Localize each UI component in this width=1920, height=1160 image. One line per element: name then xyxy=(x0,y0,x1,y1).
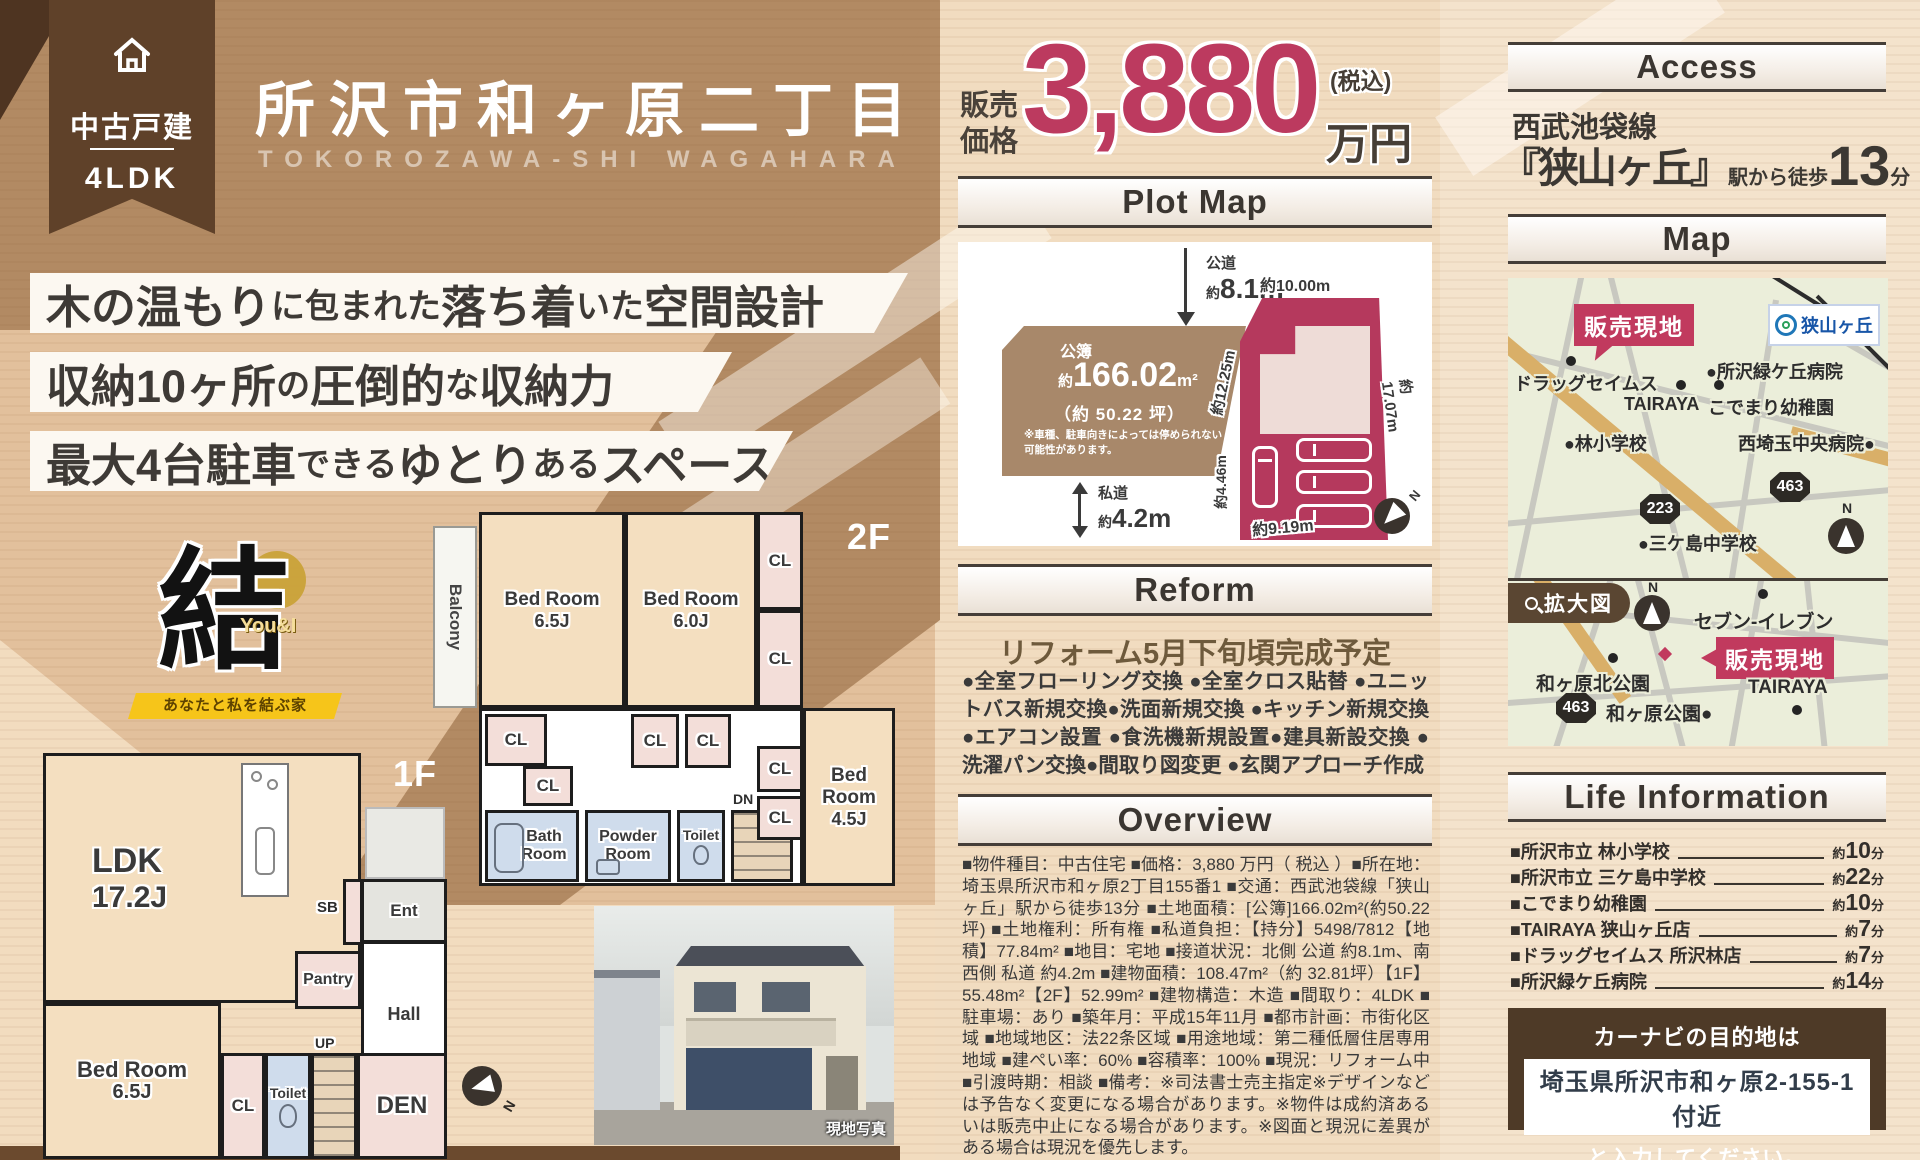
logo-accent: You&I xyxy=(240,615,296,638)
compass-upper-n: N xyxy=(1842,500,1852,516)
catchphrase-segment: 収納力 xyxy=(479,350,614,415)
access-minutes: 13 xyxy=(1828,138,1890,194)
flyer-canvas: 中古戸建 4LDK 所沢市和ヶ原二丁目 TOKOROZAWA-SHI WAGAH… xyxy=(0,0,1920,1160)
access-suffix: 駅から徒歩 xyxy=(1728,161,1828,190)
landmark-label-kindergarten: こでまり幼稚園 xyxy=(1708,394,1834,420)
landmark-dot xyxy=(1792,705,1802,715)
dim-right: 約17.07m xyxy=(1378,378,1424,445)
toilet-icon xyxy=(693,845,709,865)
access-station-line: 『狭山ヶ丘』 駅から徒歩 13 分 xyxy=(1500,134,1910,194)
toilet-icon xyxy=(279,1104,297,1128)
photo-lower-panel xyxy=(686,1048,812,1110)
road-approx: 約 xyxy=(1206,285,1220,301)
time-minutes: 7 xyxy=(1858,941,1871,967)
landmark-label-hospital2: 西埼玉中央病院● xyxy=(1738,430,1875,456)
leader-line xyxy=(1655,987,1825,989)
compass-1f xyxy=(462,1066,502,1106)
overview-header-label: Overview xyxy=(1118,801,1273,839)
logo-tagline: あなたと私を結ぶ家 xyxy=(128,693,342,719)
landmark-dot xyxy=(1758,589,1768,599)
catchphrase-segment: 木の温もり xyxy=(46,271,271,336)
company-logo: 結 You&I あなたと私を結ぶ家 xyxy=(128,543,342,719)
catchphrase-segment: の xyxy=(276,358,310,407)
landmark-label-park: 和ヶ原公園● xyxy=(1606,699,1712,726)
price-unit: 万円 xyxy=(1326,110,1412,172)
life-info-row: ■TAIRAYA 狭山ヶ丘店約7分 xyxy=(1510,916,1884,942)
catchphrase-segment: できる xyxy=(296,437,397,486)
room-label: LDK xyxy=(92,842,162,881)
time-unit: 分 xyxy=(1871,924,1884,939)
bathtub-icon xyxy=(494,823,524,873)
life-info-name: ■所沢市立 林小学校 xyxy=(1510,838,1670,864)
property-type-badge: 中古戸建 4LDK xyxy=(49,0,215,234)
catchphrase-segment: に包まれた xyxy=(271,279,441,328)
time-unit: 分 xyxy=(1871,950,1884,965)
room-label: Bed Room xyxy=(77,1059,187,1081)
compass-needle xyxy=(1643,602,1661,624)
floor-label-1f: 1F xyxy=(393,753,437,795)
life-info-time: 約14分 xyxy=(1832,967,1884,994)
bedroom-6_5j-1f: Bed Room 6.5J xyxy=(43,1003,221,1159)
pantry: Pantry xyxy=(295,951,361,1009)
route-number: 463 xyxy=(1563,699,1590,717)
life-info-row: ■所沢緑ケ丘病院約14分 xyxy=(1510,968,1884,994)
sale-site-label: 販売現地 xyxy=(1725,641,1825,675)
access-station: 『狭山ヶ丘』 xyxy=(1500,134,1728,194)
life-info-time: 約22分 xyxy=(1832,863,1884,890)
catchphrase-segment: 落ち着 xyxy=(441,271,576,336)
room-label: Hall xyxy=(387,1004,420,1025)
callout-pointer xyxy=(1701,649,1717,667)
car-icon xyxy=(1252,446,1278,508)
closet-label: CL xyxy=(769,551,792,571)
room-label: Bath xyxy=(526,828,562,846)
road-size: 4.2m xyxy=(1112,503,1171,533)
callout-pointer xyxy=(1595,343,1613,363)
map-header: Map xyxy=(1508,214,1886,264)
catchphrase-segment: 圧倒的 xyxy=(310,350,445,415)
catchphrase-segment: スペース xyxy=(600,429,775,494)
dim-bottom-left: 約4.46m xyxy=(1211,455,1231,509)
closet-label: CL xyxy=(769,649,792,669)
stairs-1f xyxy=(311,1053,357,1159)
room-size: 6.5J xyxy=(534,611,569,632)
den: DEN xyxy=(357,1053,447,1159)
landmark-dot xyxy=(1676,380,1686,390)
closet-2f-b: CL xyxy=(757,610,803,708)
price-label: 販売 価格 xyxy=(960,88,1018,160)
landmark-label-junior-high: ●三ケ島中学校 xyxy=(1638,530,1757,556)
south-road-arrowhead-top xyxy=(1072,482,1088,494)
life-info-name: ■TAIRAYA 狭山ヶ丘店 xyxy=(1510,916,1691,942)
south-road-label: 私道 約4.2m xyxy=(1098,482,1171,534)
parcel-area-unit: m² xyxy=(1177,371,1198,390)
north-road-arrow xyxy=(1184,248,1187,314)
time-minutes: 10 xyxy=(1845,837,1871,863)
compass-needle xyxy=(469,1074,495,1097)
closet-2f-c: CL xyxy=(485,714,547,766)
bedroom-4_5j-2f: Bed Room 4.5J xyxy=(803,708,895,886)
badge-type-label: 中古戸建 xyxy=(49,104,215,146)
landmark-label-elementary: ●林小学校 xyxy=(1564,430,1647,456)
area-map-lower: 拡大図 N セブン-イレブン 販売現地 和ヶ原北公園 463 和ヶ原公園● TA… xyxy=(1508,581,1888,746)
life-info-time: 約7分 xyxy=(1845,915,1884,942)
time-approx: 約 xyxy=(1845,924,1858,939)
parcel-area: 166.02 xyxy=(1073,356,1177,394)
catchphrase-segment: 収納10ヶ所 xyxy=(46,350,276,415)
overview-header: Overview xyxy=(958,794,1432,846)
house-icon xyxy=(109,34,155,76)
carnav-line1: カーナビの目的地は xyxy=(1508,1020,1886,1052)
landmark-label-seven-eleven: セブン-イレブン xyxy=(1694,607,1833,634)
leader-line xyxy=(1714,883,1825,885)
seibu-line-icon xyxy=(1775,314,1797,336)
life-info-header-label: Life Information xyxy=(1564,778,1829,816)
closet-label: CL xyxy=(537,776,560,796)
room-label: Toilet xyxy=(683,827,719,843)
closet-label: CL xyxy=(697,731,720,751)
time-minutes: 14 xyxy=(1845,967,1871,993)
room-label: Room xyxy=(521,846,566,864)
closet-2f-a: CL xyxy=(757,512,803,610)
life-info-row: ■所沢市立 三ケ島中学校約22分 xyxy=(1510,864,1884,890)
life-info-name: ■ドラッグセイムス 所沢林店 xyxy=(1510,942,1742,968)
price-amount: 3,880 xyxy=(1022,14,1317,164)
floorplan-1f: 1F LDK 17.2J Ent SB Pantry Hall Bed Room… xyxy=(43,753,447,1159)
site-photo: 現地写真 xyxy=(594,906,894,1145)
room-size: 6.0J xyxy=(673,611,708,632)
sale-site-callout-upper: 販売現地 xyxy=(1574,304,1694,346)
landmark-label-tairaya-lower: TAIRAYA xyxy=(1748,677,1828,699)
balcony-label: Balcony xyxy=(445,584,465,650)
badge-plan-label: 4LDK xyxy=(49,162,215,196)
closet-label: CL xyxy=(505,730,528,750)
road-name: 公道 xyxy=(1206,252,1284,273)
toilet-1f: Toilet xyxy=(265,1053,311,1159)
room-label: Ent xyxy=(390,901,417,921)
closet-label: CL xyxy=(232,1096,255,1116)
route-badge-463: 463 xyxy=(1770,472,1810,502)
room-size: 17.2J xyxy=(92,881,167,915)
landmark-dot xyxy=(1714,380,1724,390)
logo-glyph: 結 xyxy=(158,537,290,687)
compass-needle xyxy=(1837,525,1855,547)
badge-divider xyxy=(90,148,174,150)
carnav-address: 埼玉県所沢市和ヶ原2-155-1 付近 xyxy=(1524,1059,1870,1135)
landmark-label-tairaya: TAIRAYA xyxy=(1624,394,1699,415)
area-map: 狭山ヶ丘 販売現地 ドラッグセイムス ●所沢緑ケ丘病院 TAIRAYA こでまり… xyxy=(1508,278,1888,746)
time-unit: 分 xyxy=(1871,846,1884,861)
closet-2f-g: CL xyxy=(757,746,803,792)
parcel-tsubo: （約 50.22 坪） xyxy=(1054,400,1185,425)
south-road-arrowhead-bottom xyxy=(1072,526,1088,538)
closet-label: CL xyxy=(769,759,792,779)
plot-map-header-label: Plot Map xyxy=(1122,183,1268,221)
reform-header: Reform xyxy=(958,564,1432,616)
plot-map-diagram: 公道 約8.1m 公簿 約166.02m² （約 50.22 坪） ※車種、駐車… xyxy=(958,242,1432,546)
life-info-name: ■こでまり幼稚園 xyxy=(1510,890,1647,916)
life-info-row: ■こでまり幼稚園約10分 xyxy=(1510,890,1884,916)
price-label-line2: 価格 xyxy=(960,124,1018,160)
compass-lower-n: N xyxy=(1648,581,1658,595)
bedroom-6_0j-2f: Bed Room 6.0J xyxy=(625,512,757,708)
page-title-roman: TOKOROZAWA-SHI WAGAHARA xyxy=(258,146,907,174)
page-title: 所沢市和ヶ原二丁目 xyxy=(255,62,921,149)
reform-subtitle: リフォーム5月下旬頃完成予定 xyxy=(958,630,1432,672)
time-minutes: 7 xyxy=(1858,915,1871,941)
compass-plot-n: N xyxy=(1406,487,1424,504)
stove-icon xyxy=(251,771,262,782)
parcel-approx: 約 xyxy=(1058,373,1073,390)
life-info-time: 約10分 xyxy=(1832,889,1884,916)
leader-line xyxy=(1655,909,1825,911)
zoom-map-tab-label: 拡大図 xyxy=(1544,588,1613,618)
photo-window xyxy=(694,982,736,1012)
road-name: 私道 xyxy=(1098,482,1171,503)
powder-room-2f: Powder Room xyxy=(585,810,671,882)
photo-house-roof xyxy=(666,946,874,968)
room-label: DEN xyxy=(377,1092,428,1120)
closet-label: CL xyxy=(769,808,792,828)
life-info-time: 約10分 xyxy=(1832,837,1884,864)
time-approx: 約 xyxy=(1832,846,1845,861)
catchphrase-banner-1: 木の温もりに包まれた落ち着いた空間設計 xyxy=(30,273,908,333)
catchphrase-segment: な xyxy=(445,358,479,407)
dim-top: 約10.00m xyxy=(1260,272,1330,296)
photo-neighbor-house xyxy=(594,970,660,1110)
bathroom: Bath Room xyxy=(485,810,579,882)
photo-balcony xyxy=(686,1018,836,1046)
stove-icon xyxy=(267,779,278,790)
route-badge-463-lower: 463 xyxy=(1556,693,1596,723)
time-approx: 約 xyxy=(1832,898,1845,913)
shoe-box-label: SB xyxy=(317,899,338,916)
sink-icon xyxy=(255,827,275,875)
catchphrase-segment: 最大4台駐車 xyxy=(46,429,296,494)
sale-site-label: 販売現地 xyxy=(1584,308,1684,342)
catchphrase-segment: ある xyxy=(532,437,600,486)
room-label: Bed Room xyxy=(505,589,600,611)
compass-map-lower xyxy=(1634,595,1670,631)
overview-body: ■物件種目：中古住宅 ■価格：3,880 万円（ 税込 ）■所在地：埼玉県所沢市… xyxy=(962,854,1430,1159)
time-unit: 分 xyxy=(1871,976,1884,991)
catchphrase-banner-2: 収納10ヶ所の圧倒的な収納力 xyxy=(30,352,732,412)
leader-line xyxy=(1750,961,1838,963)
catchphrase-segment: いた xyxy=(576,279,644,328)
life-info-row: ■所沢市立 林小学校約10分 xyxy=(1510,838,1884,864)
life-info-header: Life Information xyxy=(1508,772,1886,822)
landmark-label-park-north: 和ヶ原北公園 xyxy=(1536,669,1650,696)
time-unit: 分 xyxy=(1871,872,1884,887)
bedroom-6_5j-2f: Bed Room 6.5J xyxy=(479,512,625,708)
closet-2f-d: CL xyxy=(523,766,573,806)
room-label: Bed Room xyxy=(806,765,892,809)
catchphrase-banner-3: 最大4台駐車できるゆとりあるスペース xyxy=(30,431,793,491)
catchphrase-segment: ゆとり xyxy=(397,429,532,494)
closet-2f-h: CL xyxy=(757,796,803,840)
shoe-box xyxy=(343,879,363,945)
room-label: Bed Room xyxy=(644,589,739,611)
catchphrase-segment: 空間設計 xyxy=(644,271,824,336)
parcel-note: ※車種、駐車向きによっては停められない可能性があります。 xyxy=(1024,428,1230,457)
room-label: Pantry xyxy=(303,971,353,989)
life-info-time: 約7分 xyxy=(1845,941,1884,968)
north-road-arrowhead xyxy=(1177,312,1195,326)
leader-line xyxy=(1678,857,1825,859)
time-approx: 約 xyxy=(1832,976,1845,991)
landmark-label-hospital1: ●所沢緑ケ丘病院 xyxy=(1706,358,1843,384)
magnifier-icon xyxy=(1525,597,1538,610)
zoom-map-tab: 拡大図 xyxy=(1508,583,1630,623)
map-header-label: Map xyxy=(1663,220,1732,258)
car-icon xyxy=(1296,470,1372,494)
entrance-porch xyxy=(365,807,445,879)
time-unit: 分 xyxy=(1871,898,1884,913)
sale-site-callout-lower: 販売現地 xyxy=(1716,637,1834,679)
compass-plot xyxy=(1374,498,1410,534)
compass-map-upper xyxy=(1828,518,1864,554)
photo-door xyxy=(826,1056,858,1110)
life-info-list: ■所沢市立 林小学校約10分■所沢市立 三ケ島中学校約22分■こでまり幼稚園約1… xyxy=(1510,838,1884,994)
leader-line xyxy=(1699,935,1838,937)
landmark-label-drugstore: ドラッグセイムス xyxy=(1514,370,1658,396)
station-box: 狭山ヶ丘 xyxy=(1768,304,1880,346)
closet-2f-e: CL xyxy=(631,714,679,768)
room-label: Toilet xyxy=(270,1085,306,1101)
closet-label: CL xyxy=(644,731,667,751)
kitchen-counter xyxy=(241,763,289,897)
time-approx: 約 xyxy=(1832,872,1845,887)
access-header-label: Access xyxy=(1636,48,1758,86)
stairs-up-label: UP xyxy=(315,1035,334,1051)
reform-header-label: Reform xyxy=(1134,571,1256,609)
room-size: 6.5J xyxy=(113,1081,152,1104)
building-parcel xyxy=(1240,298,1388,540)
life-info-name: ■所沢緑ケ丘病院 xyxy=(1510,968,1647,994)
price-label-line1: 販売 xyxy=(960,88,1018,124)
life-info-row: ■ドラッグセイムス 所沢林店約7分 xyxy=(1510,942,1884,968)
time-minutes: 22 xyxy=(1845,863,1871,889)
compass-needle xyxy=(1378,502,1406,530)
room-label: Powder xyxy=(599,828,657,846)
closet-2f-f: CL xyxy=(685,714,731,768)
photo-window xyxy=(762,982,810,1012)
area-map-upper: 狭山ヶ丘 販売現地 ドラッグセイムス ●所沢緑ケ丘病院 TAIRAYA こでまり… xyxy=(1508,278,1888,578)
carnav-line3: と入力してください。 xyxy=(1508,1142,1886,1160)
photo-caption: 現地写真 xyxy=(826,1118,886,1139)
route-number: 463 xyxy=(1777,478,1804,496)
balcony: Balcony xyxy=(433,526,477,708)
life-info-name: ■所沢市立 三ケ島中学校 xyxy=(1510,864,1706,890)
closet-1f: CL xyxy=(221,1053,265,1159)
plot-map-header: Plot Map xyxy=(958,176,1432,228)
sink-icon xyxy=(596,859,620,875)
road-approx: 約 xyxy=(1098,514,1112,530)
carnav-box: カーナビの目的地は 埼玉県所沢市和ヶ原2-155-1 付近 と入力してください。 xyxy=(1508,1008,1886,1130)
floorplan-2f: 2F Balcony Bed Room 6.5J Bed Room 6.0J C… xyxy=(433,512,895,886)
stairs-dn-label: DN xyxy=(733,791,753,807)
entrance: Ent xyxy=(361,879,447,943)
access-minutes-unit: 分 xyxy=(1890,161,1910,190)
time-approx: 約 xyxy=(1845,950,1858,965)
station-name: 狭山ヶ丘 xyxy=(1801,312,1873,338)
route-badge-223: 223 xyxy=(1640,494,1680,524)
landmark-dot xyxy=(1608,653,1618,663)
landmark-dot xyxy=(1566,356,1576,366)
building-footprint xyxy=(1260,326,1370,434)
car-icon xyxy=(1296,438,1372,462)
time-minutes: 10 xyxy=(1845,889,1871,915)
toilet-2f: Toilet xyxy=(677,810,725,882)
room-size: 4.5J xyxy=(831,809,866,830)
floor-label-2f: 2F xyxy=(847,516,891,558)
route-number: 223 xyxy=(1647,500,1674,518)
price-tax: (税込) xyxy=(1330,62,1391,96)
access-header: Access xyxy=(1508,42,1886,92)
reform-body: ●全室フローリング交換 ●全室クロス貼替 ●ユニットバス新規交換●洗面新規交換 … xyxy=(962,668,1429,780)
